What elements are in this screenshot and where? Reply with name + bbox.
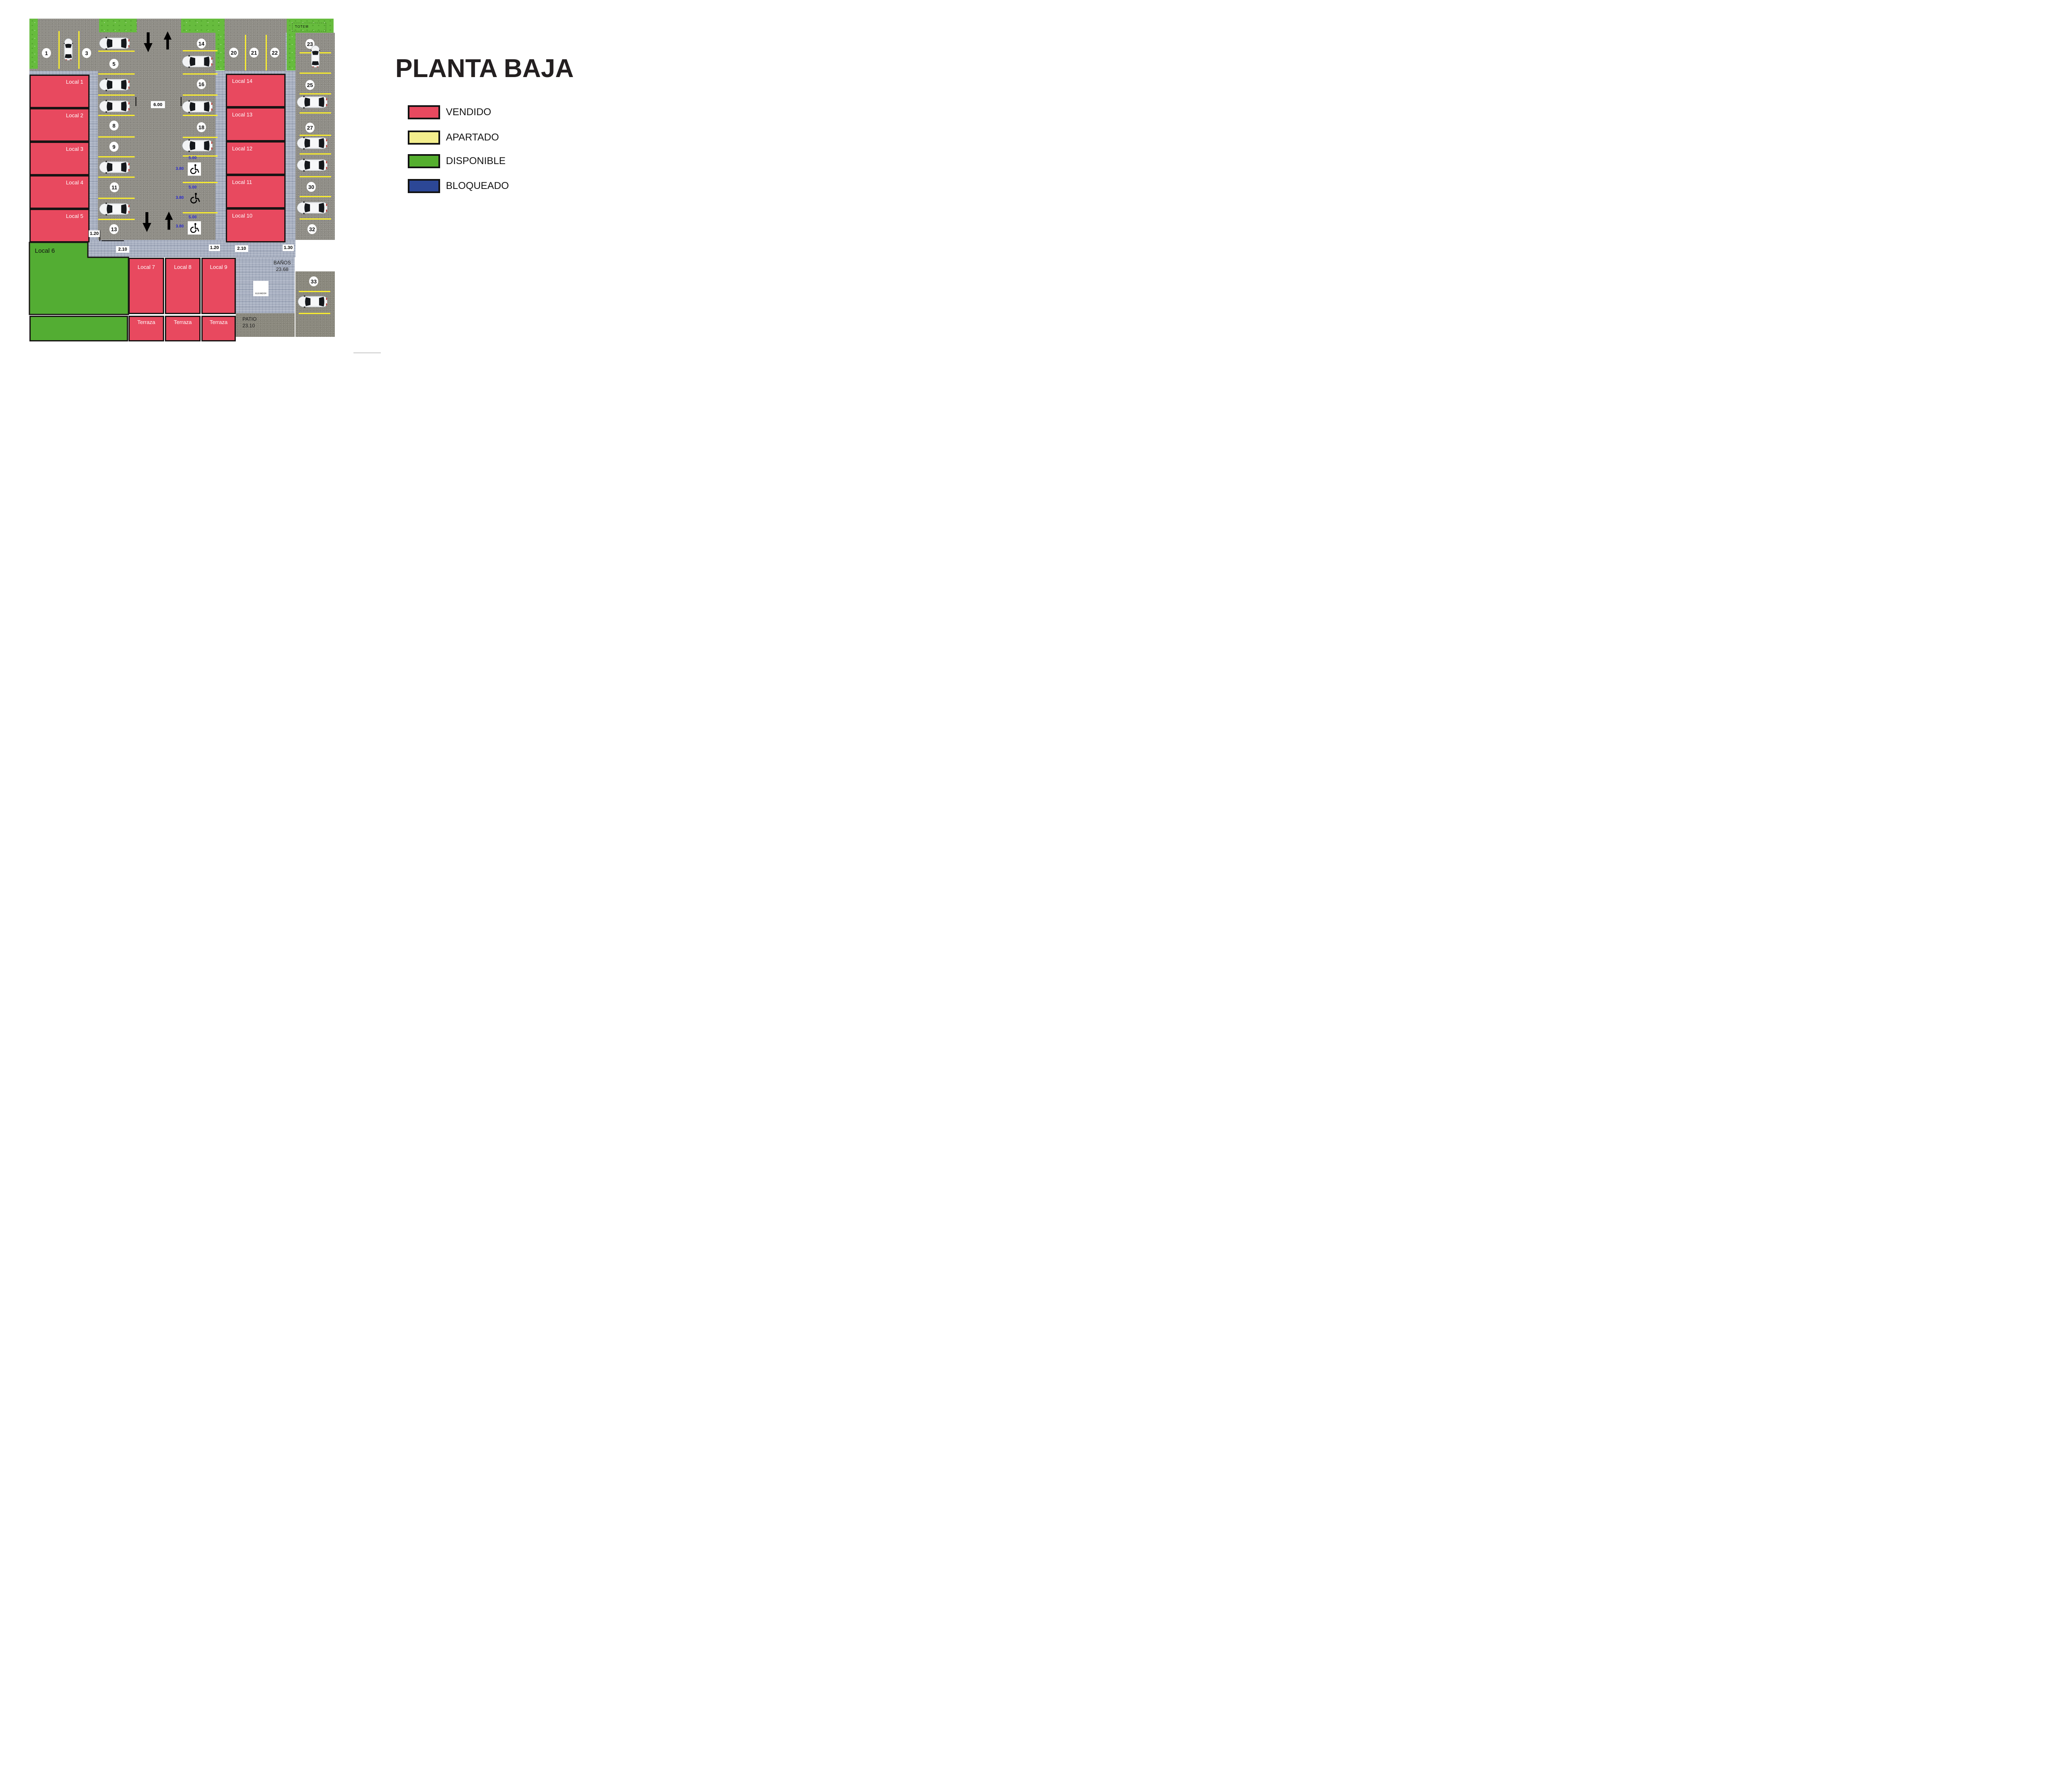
page-title: PLANTA BAJA bbox=[395, 54, 574, 83]
disponible-swatch bbox=[408, 154, 440, 168]
unit-label: Local 5 bbox=[66, 213, 83, 219]
unit-local-3: Local 3 bbox=[29, 142, 90, 175]
parking-line bbox=[98, 94, 135, 96]
parking-spot-3: 3 bbox=[82, 48, 91, 58]
sidewalk-dim: 1.30 bbox=[283, 244, 294, 251]
parking-line bbox=[299, 313, 330, 314]
parking-spot-30: 30 bbox=[307, 182, 316, 192]
terraza-label: Terraza bbox=[210, 319, 228, 325]
parking-spot-22: 22 bbox=[270, 48, 279, 58]
handicap-length-dim: 5.00 bbox=[189, 156, 196, 160]
parking-line bbox=[98, 51, 135, 52]
parking-line bbox=[300, 73, 331, 74]
terraza-local-8: Terraza bbox=[165, 316, 201, 341]
parking-spot-14: 14 bbox=[197, 39, 206, 48]
parking-line bbox=[300, 218, 331, 220]
unit-local-1: Local 1 bbox=[29, 75, 90, 108]
parking-spot-21: 21 bbox=[249, 48, 259, 58]
unit-label: Local 4 bbox=[66, 179, 83, 186]
unit-label: Local 10 bbox=[232, 213, 252, 219]
unit-local-11: Local 11 bbox=[226, 175, 286, 208]
legend-label: BLOQUEADO bbox=[446, 180, 509, 192]
car-icon bbox=[98, 203, 131, 215]
elevator: ELEVADOR bbox=[253, 281, 269, 296]
handicap-length-dim: 5.00 bbox=[189, 185, 196, 190]
car-icon bbox=[310, 45, 320, 68]
sidewalk-dim: 1.20 bbox=[89, 230, 100, 237]
unit-label: Local 9 bbox=[210, 264, 228, 270]
parking-spot-27: 27 bbox=[305, 123, 315, 133]
unit-local-8: Local 8 bbox=[165, 258, 201, 314]
parking-line bbox=[98, 73, 135, 75]
patio-label: PATIO bbox=[242, 316, 257, 322]
legend-label: DISPONIBLE bbox=[446, 155, 506, 167]
vendido-swatch bbox=[408, 105, 440, 119]
car-icon bbox=[296, 159, 328, 172]
parking-spot-5: 5 bbox=[109, 59, 119, 69]
unit-local-6-lower bbox=[29, 316, 128, 341]
handicap-length-dim: 5.00 bbox=[189, 215, 196, 220]
legend-label: VENDIDO bbox=[446, 106, 491, 118]
floor-plan-page: TOTEM bbox=[0, 0, 663, 353]
unit-label: Local 7 bbox=[138, 264, 155, 270]
handicap-width-dim: 3.80 bbox=[176, 167, 184, 171]
car-icon bbox=[296, 96, 328, 109]
parking-line bbox=[300, 176, 331, 177]
sidewalk-dim: 2.10 bbox=[235, 245, 248, 252]
wheelchair-icon bbox=[189, 192, 201, 204]
parking-spot-18: 18 bbox=[197, 122, 206, 132]
parking-line bbox=[299, 291, 330, 292]
parking-line bbox=[183, 94, 218, 96]
arrow-down-icon bbox=[144, 32, 153, 52]
parking-line bbox=[183, 212, 218, 213]
parking-line bbox=[98, 198, 135, 199]
parking-spot-13: 13 bbox=[109, 224, 119, 234]
terraza-local-7: Terraza bbox=[128, 316, 164, 341]
dim-tick bbox=[136, 97, 136, 106]
car-icon bbox=[98, 78, 131, 91]
unit-local-14: Local 14 bbox=[226, 74, 286, 107]
parking-spot-33: 33 bbox=[309, 276, 318, 286]
unit-label: Local 13 bbox=[232, 111, 252, 118]
arrow-down-icon bbox=[143, 212, 152, 232]
grass-patch-totem-strip bbox=[287, 33, 295, 70]
car-icon bbox=[297, 295, 328, 308]
arrow-up-icon bbox=[164, 30, 172, 51]
car-icon bbox=[98, 37, 131, 50]
elevator-label: ELEVADOR bbox=[255, 293, 266, 295]
handicap-stall bbox=[188, 221, 201, 235]
parking-line bbox=[98, 156, 135, 157]
floor-plan: TOTEM bbox=[0, 0, 663, 353]
unit-label: Local 14 bbox=[232, 78, 252, 84]
parking-line bbox=[183, 137, 218, 138]
parking-spot-1: 1 bbox=[42, 48, 51, 58]
unit-local-9: Local 9 bbox=[201, 258, 236, 314]
banos-label: BAÑOS bbox=[274, 260, 291, 266]
parking-line bbox=[183, 155, 218, 157]
unit-label: Local 12 bbox=[232, 145, 252, 152]
parking-line bbox=[78, 31, 80, 69]
patio-area-value: 23.10 bbox=[242, 323, 255, 329]
parking-line bbox=[300, 196, 331, 197]
unit-local-13: Local 13 bbox=[226, 107, 286, 141]
unit-label: Local 2 bbox=[66, 112, 83, 119]
parking-spot-9: 9 bbox=[109, 142, 119, 152]
unit-local-4: Local 4 bbox=[29, 175, 90, 209]
parking-line bbox=[300, 153, 331, 155]
sidewalk-dim: 2.10 bbox=[116, 246, 129, 253]
parking-line bbox=[183, 182, 218, 183]
parking-spot-11: 11 bbox=[110, 182, 119, 192]
car-icon bbox=[296, 137, 328, 150]
walkway-left-vertical bbox=[90, 75, 98, 240]
legend-item-vendido: VENDIDO bbox=[408, 105, 491, 119]
arrow-up-icon bbox=[165, 211, 173, 230]
parking-line bbox=[183, 50, 218, 51]
parking-area-top-right bbox=[225, 19, 287, 71]
car-icon bbox=[63, 38, 73, 61]
unit-label: Local 11 bbox=[232, 179, 252, 185]
bloqueado-swatch bbox=[408, 179, 440, 193]
cropped-edge-artifact bbox=[353, 352, 381, 353]
legend-item-apartado: APARTADO bbox=[408, 131, 499, 145]
legend-item-disponible: DISPONIBLE bbox=[408, 154, 506, 168]
sidewalk-dim: 1.20 bbox=[209, 244, 220, 251]
parking-spot-25: 25 bbox=[305, 80, 315, 90]
unit-local-5: Local 5 bbox=[29, 209, 90, 242]
parking-line bbox=[300, 112, 331, 114]
handicap-width-dim: 3.80 bbox=[176, 224, 184, 229]
parking-line bbox=[245, 35, 246, 70]
parking-spot-20: 20 bbox=[229, 48, 238, 58]
apartado-swatch bbox=[408, 131, 440, 145]
unit-label: Local 3 bbox=[66, 146, 83, 152]
parking-spot-32: 32 bbox=[307, 224, 317, 234]
unit-local-7: Local 7 bbox=[128, 258, 164, 314]
wheelchair-icon bbox=[189, 223, 200, 233]
unit-local-10: Local 10 bbox=[226, 208, 286, 242]
legend-label: APARTADO bbox=[446, 132, 499, 143]
parking-line bbox=[300, 135, 331, 136]
grass-patch-2-strip bbox=[215, 33, 225, 70]
legend-item-bloqueado: BLOQUEADO bbox=[408, 179, 509, 193]
unit-local-12: Local 12 bbox=[226, 141, 286, 175]
unit-local-2: Local 2 bbox=[29, 108, 90, 142]
unit-label: Local 8 bbox=[174, 264, 191, 270]
car-icon bbox=[181, 55, 213, 68]
handicap-width-dim: 3.80 bbox=[176, 196, 184, 200]
terraza-local-9: Terraza bbox=[201, 316, 236, 341]
parking-spot-8: 8 bbox=[109, 121, 119, 131]
grass-patch-2 bbox=[181, 19, 225, 33]
parking-line bbox=[98, 136, 135, 138]
parking-line bbox=[98, 219, 135, 220]
car-icon bbox=[181, 139, 213, 152]
lane-width-dim: 6.00 bbox=[151, 101, 165, 108]
handicap-stall bbox=[188, 162, 201, 176]
parking-spot-16: 16 bbox=[197, 79, 206, 89]
totem-label: TOTEM bbox=[295, 25, 309, 29]
grass-patch-1 bbox=[99, 19, 137, 32]
parking-line bbox=[183, 115, 218, 116]
parking-line bbox=[98, 115, 135, 116]
parking-line bbox=[266, 35, 267, 70]
banos-area-value: 23.68 bbox=[276, 266, 288, 272]
unit-label: Local 1 bbox=[66, 79, 83, 85]
parking-line bbox=[98, 177, 135, 178]
car-icon bbox=[181, 100, 213, 113]
car-icon bbox=[98, 161, 131, 174]
parking-line bbox=[58, 31, 60, 69]
parking-line bbox=[183, 73, 218, 75]
car-icon bbox=[296, 201, 328, 214]
unit-label: Local 6 bbox=[35, 247, 55, 254]
grass-left-strip bbox=[29, 19, 38, 69]
terraza-label: Terraza bbox=[137, 319, 155, 325]
car-icon bbox=[98, 100, 131, 113]
parking-line bbox=[300, 93, 331, 94]
terraza-label: Terraza bbox=[174, 319, 191, 325]
wheelchair-icon bbox=[189, 164, 200, 174]
